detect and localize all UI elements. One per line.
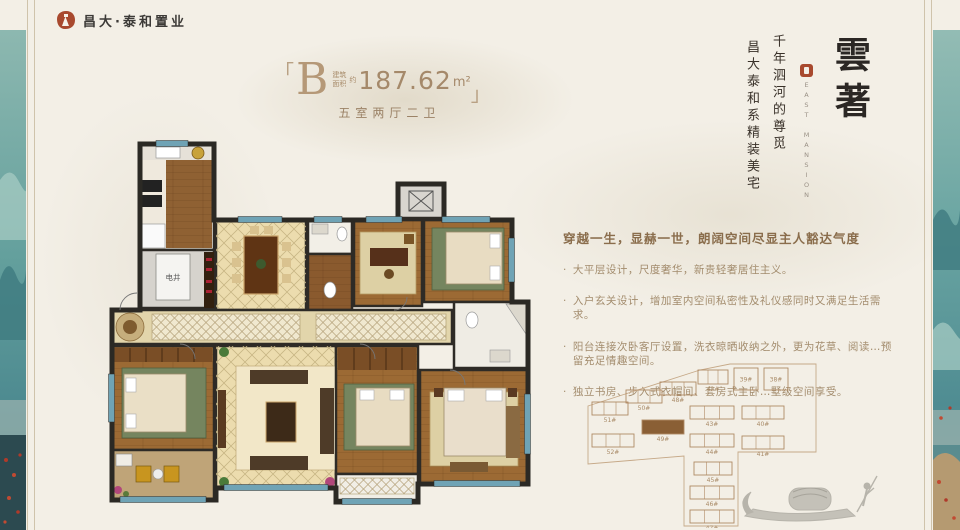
building-label: 39# — [740, 377, 753, 384]
siteplan-building: 51# — [592, 402, 628, 424]
siteplan-building: 49# — [642, 420, 684, 443]
frame-line — [931, 0, 932, 530]
siteplan-building: 43# — [690, 406, 734, 428]
siteplan-building: 45# — [694, 462, 732, 484]
building-label: 47# — [706, 525, 719, 528]
siteplan-building: 50# — [626, 390, 662, 412]
seal-icon — [800, 64, 813, 77]
unit-layout-text: 五室两厅二卫 — [274, 104, 491, 121]
room-hall-top — [308, 254, 352, 310]
building-label: 50# — [638, 405, 651, 412]
siteplan-building: 42# — [698, 370, 728, 393]
brochure-page: 昌大·泰和置业 「 B 建筑面积 约 187.62 m² 」 五室两厅二卫 — [0, 0, 960, 530]
room-master-bedroom — [420, 370, 528, 484]
siteplan-building: 40# — [742, 406, 784, 428]
elevator-shaft — [398, 184, 444, 218]
project-name-en: EAST MANSION — [803, 81, 811, 201]
room-bedroom-bottomcenter — [336, 346, 418, 500]
balcony-bottomleft — [112, 450, 214, 500]
room-bedroom-bottomleft — [112, 346, 214, 450]
building-label: 41# — [757, 451, 770, 458]
building-label: 38# — [770, 377, 783, 384]
room-dining — [216, 220, 306, 310]
landscape-strip-left — [0, 30, 26, 530]
siteplan-building: 46# — [690, 486, 734, 508]
frame-line — [34, 0, 35, 530]
room-utility-foyer: 电井 — [140, 250, 214, 308]
brand-name: 昌大·泰和置业 — [83, 11, 187, 30]
slogan-line-2: 昌大泰和系精装美宅 — [742, 40, 761, 193]
room-kitchen — [140, 144, 214, 250]
building-label: 40# — [757, 421, 770, 428]
corridor — [112, 310, 452, 344]
area-unit: m² — [453, 75, 471, 90]
building-label: 49# — [657, 436, 670, 443]
bracket-left: 「 — [274, 56, 294, 85]
siteplan-building: 44# — [690, 434, 734, 456]
siteplan-building: 39# — [734, 368, 758, 390]
building-label: 44# — [706, 449, 719, 456]
headline-block: 雲著 EAST MANSION 千年泗河的尊觅 昌大泰和系精装美宅 — [738, 26, 888, 216]
siteplan-building: 52# — [592, 434, 634, 456]
brand-logo: 昌大·泰和置业 — [56, 10, 187, 30]
siteplan-building: 38# — [764, 368, 788, 390]
building-label: 48# — [672, 397, 685, 404]
siteplan-building: 47# — [690, 510, 734, 528]
floorplan: 电井 — [98, 138, 538, 506]
building-label: 51# — [604, 417, 617, 424]
project-name: 雲著 — [824, 36, 876, 128]
brand-logo-icon — [56, 10, 76, 30]
room-bath-right — [454, 302, 528, 368]
marketing-bullet: ·入户玄关设计，增加室内空间私密性及礼仪感同时又满足生活需求。 — [563, 294, 899, 322]
marketing-bullet: ·大平层设计，尺度奢华，新贵轻奢居住主义。 — [563, 263, 899, 277]
area-value: 187.62 — [358, 66, 451, 95]
landscape-strip-right — [933, 30, 960, 530]
siteplan-building: 41# — [742, 436, 784, 458]
boat-illustration — [733, 474, 903, 530]
seal-column: EAST MANSION — [800, 64, 813, 201]
room-study — [354, 220, 422, 306]
room-bath-top — [308, 220, 352, 254]
bracket-right: 」 — [471, 78, 491, 107]
unit-title: 「 B 建筑面积 约 187.62 m² 」 五室两厅二卫 — [274, 58, 491, 121]
area-approx: 约 — [349, 75, 356, 85]
area-label: 建筑面积 — [332, 71, 348, 89]
room-bedroom-topright — [424, 220, 512, 302]
frame-line — [27, 0, 28, 530]
siteplan-building: 48# — [660, 382, 696, 404]
marketing-heading: 穿越一生，显赫一世，朗阔空间尽显主人豁达气度 — [563, 228, 899, 247]
slogan-line-1: 千年泗河的尊觅 — [768, 34, 787, 153]
building-label: 43# — [706, 421, 719, 428]
building-label: 46# — [706, 501, 719, 508]
room-living — [216, 346, 336, 488]
unit-letter: B — [296, 58, 328, 102]
building-label: 45# — [707, 477, 720, 484]
building-label: 42# — [707, 386, 720, 393]
building-label: 52# — [607, 449, 620, 456]
shaft-label: 电井 — [166, 272, 181, 282]
frame-line — [924, 0, 925, 530]
